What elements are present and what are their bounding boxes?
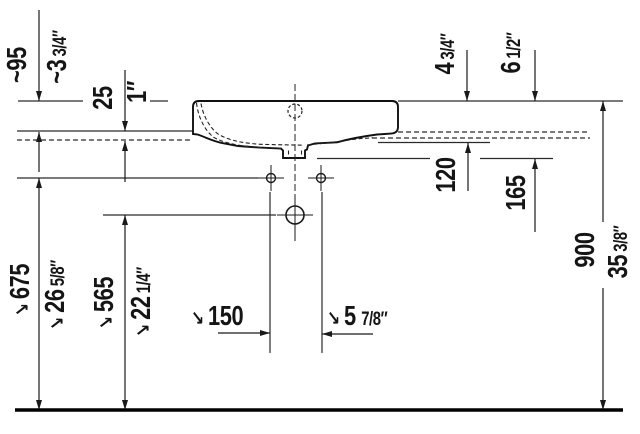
dim-console-thickness-metric: 25: [87, 86, 119, 110]
dim-hole-spacing-metric: ↘150: [191, 300, 243, 332]
leader-arrow-icon: ↘: [94, 316, 118, 329]
dim-hole-spacing-imperial: ↘57/8″: [327, 300, 387, 332]
leader-arrow-icon: ↘: [327, 306, 340, 330]
leader-arrow-icon: ↘: [45, 317, 69, 330]
dim-rim-height-imperial: 353/8″: [602, 226, 634, 279]
drawing-linework: [0, 0, 640, 434]
dim-fixing-holes-height-imperial: ↘265/8″: [39, 260, 71, 330]
dim-fixing-drop-imperial: 61/2″: [495, 32, 527, 73]
installation-drawing: ~95 ~33/4″ 25 1″ 43/4″ 61/2″ 120 165 ↘67…: [0, 0, 640, 434]
dim-underside-drop-metric: 120: [430, 157, 462, 192]
leader-arrow-icon: ↘: [191, 306, 204, 330]
dim-drain-height-metric: ↘565: [88, 277, 120, 329]
dim-rim-above-console-metric: ~95: [1, 47, 33, 83]
dim-fixing-holes-height-metric: ↘675: [4, 264, 36, 316]
dim-rim-above-console-imperial: ~33/4″: [41, 30, 73, 83]
dim-drain-height-imperial: ↘221/4″: [125, 267, 157, 337]
dim-fixing-drop-metric: 165: [500, 175, 532, 210]
dim-underside-drop-imperial: 43/4″: [429, 33, 461, 74]
leader-arrow-icon: ↘: [131, 324, 155, 337]
leader-arrow-icon: ↘: [10, 303, 34, 316]
dim-rim-height-metric: 900: [569, 232, 601, 267]
washbasin-section: [193, 84, 398, 196]
dim-console-thickness-imperial: 1″: [121, 81, 153, 103]
arrowheads: [36, 91, 606, 410]
basin-hidden-contours: [197, 103, 374, 158]
